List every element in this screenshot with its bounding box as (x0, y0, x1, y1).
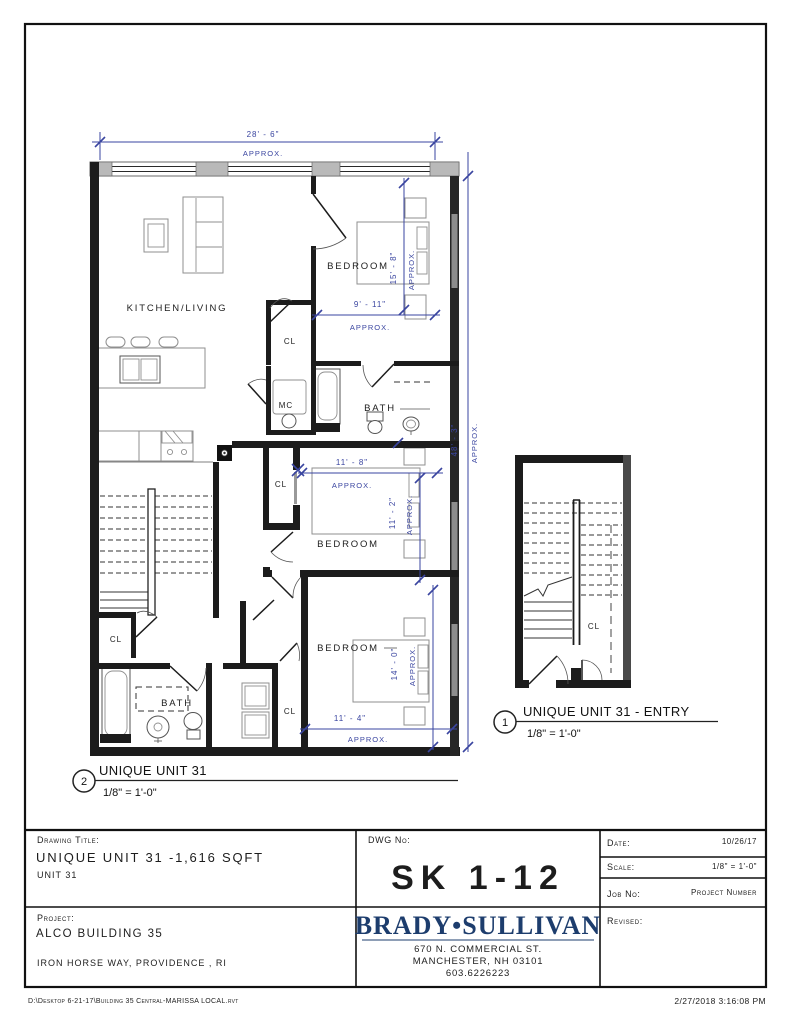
kitchen-sink (120, 356, 160, 383)
company-address-1: 670 N. COMMERCIAL ST. (414, 944, 542, 955)
window (452, 214, 458, 288)
view-number: 1 (502, 717, 508, 729)
label-bedroom-3: BEDROOM (317, 643, 379, 654)
sofa (183, 197, 223, 273)
label-bedroom-2: BEDROOM (317, 539, 379, 550)
company-address-2: MANCHESTER, NH 03101 (413, 956, 544, 967)
dim-bedroom1-width: 9' - 11" (354, 300, 386, 309)
sink (403, 417, 419, 431)
closet-shelf (242, 712, 269, 738)
water-heater (282, 414, 296, 428)
nightstand (404, 707, 425, 725)
bed (312, 468, 420, 534)
title-block: Drawing Title: UNIQUE UNIT 31 -1,616 SQF… (25, 830, 766, 987)
entry-plan: CL (515, 455, 631, 688)
dim-bedroom1-depth: 15' - 8" (389, 252, 398, 285)
window (452, 624, 458, 696)
nightstand (404, 540, 425, 558)
window (452, 502, 458, 576)
view-title: UNIQUE UNIT 31 - ENTRY (523, 704, 690, 719)
stair-stringer (148, 489, 155, 615)
company-phone: 603.6226223 (446, 968, 510, 979)
nightstand (404, 618, 425, 636)
pier (430, 162, 459, 176)
label-bedroom-1: BEDROOM (327, 261, 389, 272)
view-title-unit: 2 UNIQUE UNIT 31 1/8" = 1'-0" (73, 763, 458, 799)
dwg-no: SK 1-12 (391, 859, 565, 897)
label-closet-2: CL (275, 480, 287, 489)
nightstand (405, 198, 426, 218)
project-label: Project: (37, 913, 74, 923)
dim-approx: APPROX. (332, 481, 372, 490)
date-label: Date: (607, 838, 630, 848)
dwg-no-label: DWG No: (368, 835, 410, 845)
label-closet-4: CL (284, 707, 296, 716)
stool (131, 337, 150, 347)
toilet (184, 713, 202, 730)
floor-plan-svg: 28' - 6" APPROX. 48' - 3" APPROX. 9' - 1… (0, 0, 791, 1024)
project-address: IRON HORSE WAY, PROVIDENCE , RI (37, 958, 227, 968)
dim-bedroom3-depth: 14' - 0" (390, 648, 399, 681)
project-name: ALCO BUILDING 35 (36, 928, 163, 940)
dim-overall-width: 28' - 6" (247, 130, 280, 139)
sink (147, 716, 169, 738)
bathtub (102, 668, 130, 741)
company-logo: BRADY•SULLIVAN (355, 911, 602, 940)
dim-approx: APPROX. (407, 250, 416, 290)
drawing-title-label: Drawing Title: (37, 835, 99, 845)
pier (312, 162, 340, 176)
pier (196, 162, 228, 176)
stool (106, 337, 125, 347)
view-title-entry: 1 UNIQUE UNIT 31 - ENTRY 1/8" = 1'-0" (494, 704, 718, 740)
closet-shelf (242, 683, 269, 709)
view-number: 2 (81, 776, 87, 788)
view-scale: 1/8" = 1'-0" (527, 728, 581, 740)
drawing-sheet: 28' - 6" APPROX. 48' - 3" APPROX. 9' - 1… (0, 0, 791, 1024)
label-closet-entry: CL (588, 622, 600, 631)
job-value: Project Number (691, 888, 757, 897)
kitchen-counter (92, 431, 139, 461)
print-timestamp: 2/27/2018 3:16:08 PM (674, 996, 766, 1006)
stair-break-line (524, 577, 572, 596)
revised-label: Revised: (607, 916, 643, 926)
scale-value: 1/8" = 1'-0" (712, 862, 757, 871)
label-closet-1: CL (284, 337, 296, 346)
job-label: Job No: (607, 889, 641, 899)
view-scale: 1/8" = 1'-0" (103, 787, 157, 799)
drawing-title: UNIQUE UNIT 31 -1,616 SQFT (36, 850, 264, 865)
unit-plan: 28' - 6" APPROX. 48' - 3" APPROX. 9' - 1… (90, 130, 479, 756)
scale-label: Scale: (607, 862, 635, 872)
dim-approx: APPROX. (350, 323, 390, 332)
label-bath-2: BATH (161, 698, 193, 709)
dim-approx: APPROX. (348, 735, 388, 744)
date-value: 10/26/17 (722, 837, 757, 846)
dim-bedroom2-depth: 11' - 2" (388, 497, 397, 529)
dim-approx: APPROX. (408, 646, 417, 686)
label-mc: MC (279, 401, 293, 410)
nightstand (404, 448, 425, 465)
dim-bedroom3-width: 11' - 4" (334, 714, 366, 723)
label-kitchen-living: KITCHEN/LIVING (127, 303, 228, 314)
drawing-subtitle: UNIT 31 (37, 870, 77, 880)
furniture (92, 197, 429, 738)
stool (159, 337, 178, 347)
dim-approx: APPROX. (405, 495, 414, 535)
dim-approx: APPROX. (470, 423, 479, 463)
label-closet-3: CL (110, 635, 122, 644)
dim-approx: APPROX. (243, 149, 283, 158)
label-bath-1: BATH (364, 403, 396, 414)
dim-bedroom2-width: 11' - 8" (336, 458, 368, 467)
dim-overall-depth: 48' - 3" (450, 424, 459, 457)
file-path: D:\Desktop 6-21-17\Building 35 Central-M… (28, 998, 239, 1005)
view-title: UNIQUE UNIT 31 (99, 763, 207, 778)
stairs (100, 489, 212, 615)
